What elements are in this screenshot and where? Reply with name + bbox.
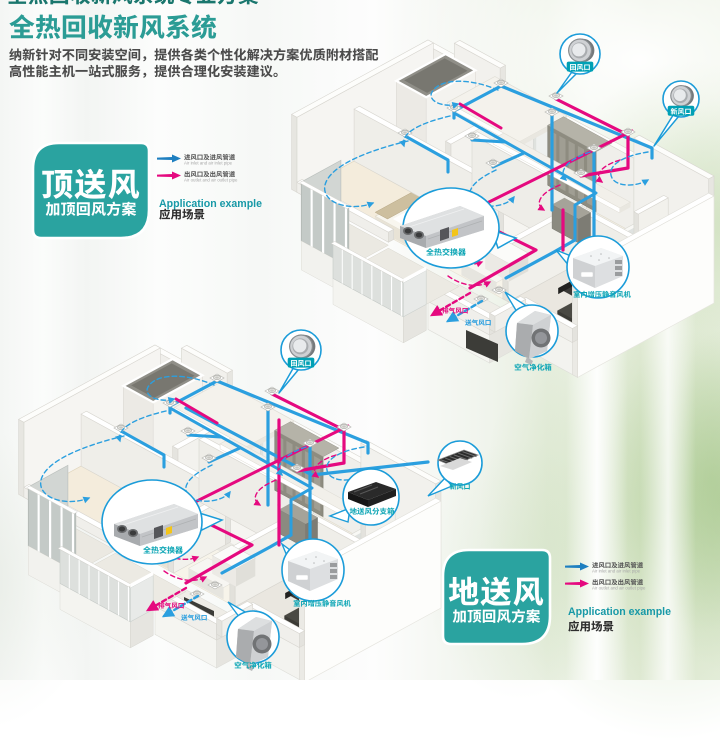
- svg-text:Air inlet and air inlet pipe: Air inlet and air inlet pipe: [184, 161, 233, 166]
- svg-text:Air inlet and air inlet pipe: Air inlet and air inlet pipe: [592, 569, 641, 574]
- svg-text:Application example: Application example: [568, 606, 671, 618]
- svg-text:Air outlet and air outlet pipe: Air outlet and air outlet pipe: [184, 178, 238, 183]
- svg-text:Air outlet and air outlet pipe: Air outlet and air outlet pipe: [592, 586, 646, 591]
- svg-text:Application example: Application example: [159, 198, 262, 210]
